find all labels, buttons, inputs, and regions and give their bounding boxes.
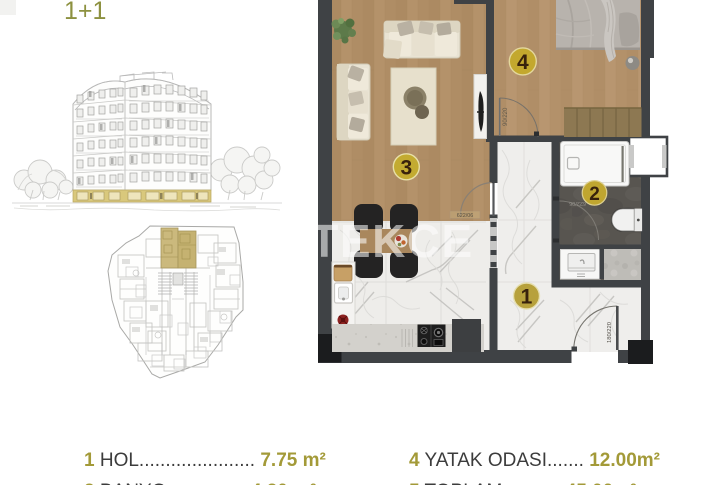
svg-text:180/220: 180/220: [607, 322, 613, 343]
svg-text:1: 1: [521, 286, 533, 309]
svg-text:3: 3: [400, 156, 412, 179]
svg-text:4: 4: [517, 51, 529, 74]
svg-text:622/06: 622/06: [569, 200, 586, 206]
svg-text:2: 2: [589, 184, 600, 205]
svg-text:TEKCE: TEKCE: [310, 215, 473, 267]
svg-text:90/220: 90/220: [503, 107, 509, 126]
